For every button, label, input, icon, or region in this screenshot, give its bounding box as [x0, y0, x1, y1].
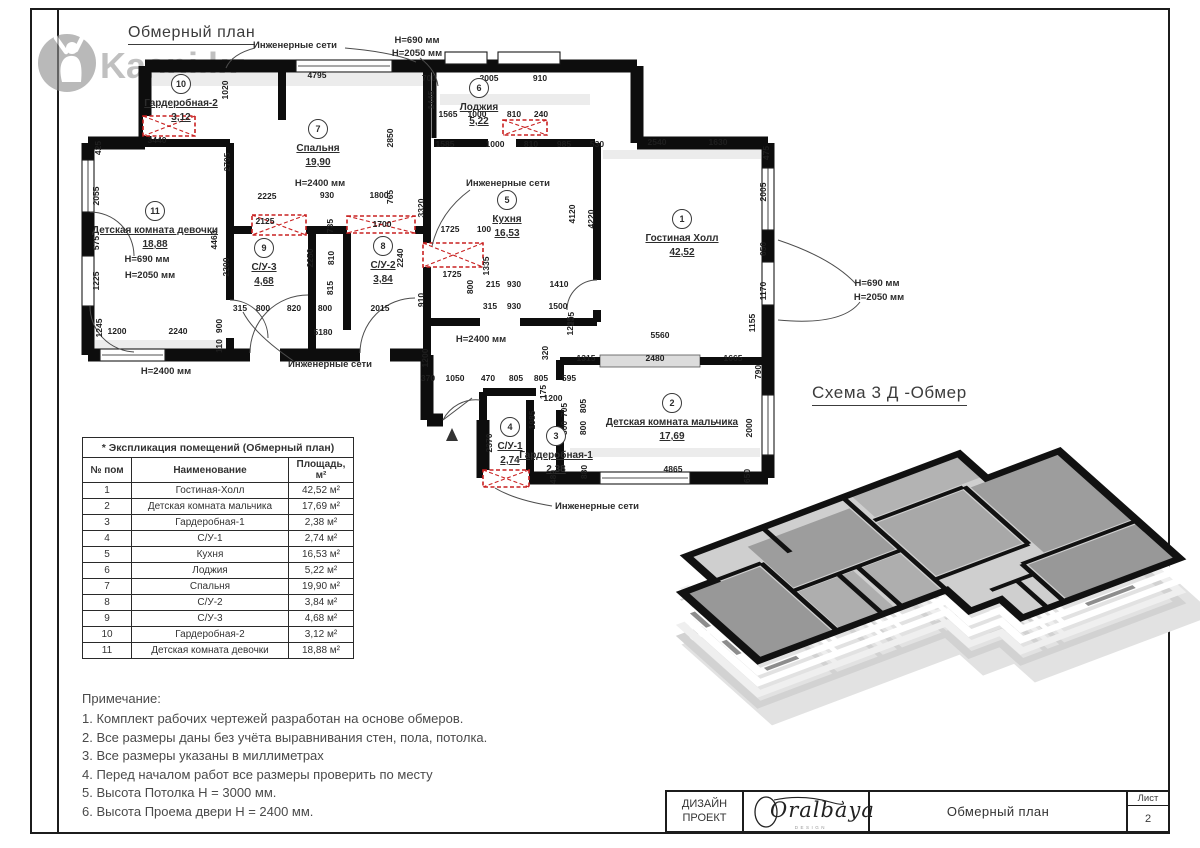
sheet-number-cell: Лист 2 [1128, 792, 1168, 831]
col-header-name: Наименование [132, 458, 289, 483]
col-header-num: № пом [83, 458, 132, 483]
dimension-label: 1700 [373, 219, 392, 229]
entry-arrow [446, 428, 458, 441]
table-row: 6Лоджия5,22 м² [83, 563, 354, 579]
doc-title-cell: Обмерный план [870, 792, 1128, 831]
annotation-label: Инженерные сети [253, 40, 337, 51]
sheet-label: Лист [1128, 792, 1168, 806]
note-item: 1. Комплект рабочих чертежей разработан … [82, 710, 522, 728]
dimension-label: 2005 [758, 182, 768, 201]
dimension-label: 810 [326, 251, 336, 265]
room-area: 19,90 [305, 157, 330, 168]
note-item: 4. Перед началом работ все размеры прове… [82, 766, 522, 784]
room-area: 2,38 [546, 464, 566, 475]
dimension-label: 320 [540, 346, 550, 360]
dimension-label: 805 [509, 373, 523, 383]
dimension-label: 2240 [395, 248, 405, 267]
dimension-label: 530 [590, 139, 604, 149]
company-line2: ПРОЕКТ [682, 812, 726, 826]
dimension-label: 175 [538, 385, 548, 399]
dimension-label: 4795 [308, 70, 327, 80]
dimension-label: 315 [483, 301, 497, 311]
dimension-label: 3440 [148, 135, 167, 145]
dimension-label: 880 [579, 465, 589, 479]
room-number: 8 [380, 241, 385, 251]
dimension-label: 820 [287, 303, 301, 313]
dimension-label: 1245 [94, 318, 104, 337]
dimension-label: 930 [320, 190, 334, 200]
company-cell: ДИЗАЙН ПРОЕКТ [667, 792, 744, 831]
sheet-number: 2 [1128, 806, 1168, 831]
room-name: С/У-2 [370, 260, 396, 271]
dimension-label: 370 [421, 373, 435, 383]
dimension-label: 810 [524, 139, 538, 149]
table-row: 7Спальня19,90 м² [83, 579, 354, 595]
annotation-label: Инженерные сети [466, 178, 550, 189]
logo-subtext: DESIGN [795, 825, 827, 830]
annotation-label: Инженерные сети [555, 501, 639, 512]
room-name: Лоджия [460, 102, 499, 113]
title-block: ДИЗАЙН ПРОЕКТ Oralbaya DESIGN Обмерный п… [665, 790, 1170, 833]
table-row: 3Гардеробная-12,38 м² [83, 515, 354, 531]
dimension-label: 900 [214, 319, 224, 333]
table-row: 1Гостиная-Холл42,52 м² [83, 483, 354, 499]
dimension-label: 1500 [549, 301, 568, 311]
notes-block: Примечание: 1. Комплект рабочих чертежей… [82, 690, 522, 821]
dimension-label: 2015 [371, 303, 390, 313]
dimension-label: 2370 [484, 433, 494, 452]
dimension-label: 2240 [169, 326, 188, 336]
note-item: 6. Высота Проема двери Н = 2400 мм. [82, 803, 522, 821]
dimension-label: 100 [477, 224, 491, 234]
room-number: 10 [176, 79, 186, 89]
dimension-label: 1000 [486, 139, 505, 149]
room-number: 6 [476, 83, 481, 93]
dimension-label: 2480 [646, 353, 665, 363]
annotation-label: Н=2400 мм [141, 366, 191, 377]
dimension-label: 1665 [724, 353, 743, 363]
room-area: 3,84 [373, 274, 393, 285]
room-area: 42,52 [669, 247, 694, 258]
dimension-label: 815 [325, 281, 335, 295]
room-name: Спальня [296, 143, 339, 154]
dimension-label: 985 [557, 139, 571, 149]
note-item: 2. Все размеры даны без учёта выравниван… [82, 729, 522, 747]
room-name: Кухня [492, 214, 521, 225]
dimension-label: 425 [93, 141, 103, 155]
dimension-label: 2540 [648, 137, 667, 147]
dimension-label: 810 [507, 109, 521, 119]
dimension-label: 910 [533, 73, 547, 83]
room-area: 17,69 [659, 431, 684, 442]
annotation-label: Н=690 мм [395, 35, 440, 46]
dimension-label: 930 [507, 279, 521, 289]
company-line1: ДИЗАЙН [682, 798, 727, 812]
dimension-label: 1315 [577, 353, 596, 363]
dimension-label: 1170 [758, 282, 768, 301]
explication-body: 1Гостиная-Холл42,52 м²2Детская комната м… [83, 483, 354, 659]
col-header-area: Площадь, м² [289, 458, 354, 483]
room-number: 9 [261, 243, 266, 253]
dimension-label: 1200 [420, 348, 430, 367]
annotation-label: Н=2050 мм [854, 292, 904, 303]
dimension-label: 805 [578, 399, 588, 413]
room-area: 16,53 [494, 228, 519, 239]
explication-table: * Экспликация помещений (Обмерный план) … [82, 437, 354, 659]
dimension-label: 805 [534, 373, 548, 383]
room-number: 2 [669, 398, 674, 408]
room-name: Детская комната мальчика [606, 417, 739, 428]
annotation-label: Н=2050 мм [125, 270, 175, 281]
table-row: 4С/У-12,74 м² [83, 531, 354, 547]
annotation-label: Н=690 мм [855, 278, 900, 289]
dimension-label: 240 [534, 109, 548, 119]
dimension-label: 650 [758, 242, 768, 256]
dimension-label: 5180 [314, 327, 333, 337]
dimension-label: 800 [318, 303, 332, 313]
annotation-label: Н=2400 мм [456, 334, 506, 345]
dimension-label: 1985 [527, 410, 537, 429]
dimension-label: 2225 [258, 191, 277, 201]
dimension-label: 1410 [550, 279, 569, 289]
dimension-label: 2850 [385, 128, 395, 147]
room-name: Детская комната девочки [92, 225, 218, 236]
dimension-label: 1020 [220, 80, 230, 99]
room-area: 18,88 [142, 239, 167, 250]
room-name: Гардеробная-2 [144, 97, 218, 109]
dimension-label: 2055 [91, 186, 101, 205]
room-area: 4,68 [254, 276, 274, 287]
drawing-sheet: { "sheet": { "plan_title": "Обмерный пла… [0, 0, 1200, 848]
dimension-label: 800 [465, 280, 475, 294]
table-title: * Экспликация помещений (Обмерный план) [83, 438, 354, 458]
dimension-label: 1725 [443, 269, 462, 279]
room-number: 4 [507, 422, 512, 432]
table-header-row: № пом Наименование Площадь, м² [83, 458, 354, 483]
room-area: 5,22 [469, 116, 489, 127]
table-row: 2Детская комната мальчика17,69 м² [83, 499, 354, 515]
dimension-label: 110 [214, 339, 224, 353]
dimension-label: 4220 [586, 209, 596, 228]
dimension-label: 1200 [108, 326, 127, 336]
room-name: С/У-3 [251, 262, 277, 273]
annotation-label: Н=2050 мм [392, 48, 442, 59]
dimension-label: 4120 [567, 204, 577, 223]
dimension-label: 800 [256, 303, 270, 313]
room-area: 3,12 [171, 112, 191, 123]
annotation-label: Инженерные сети [288, 359, 372, 370]
room-area: 2,74 [500, 455, 520, 466]
dimension-label: 2200 [221, 257, 231, 276]
room-name: Гостиная Холл [645, 233, 718, 244]
table-row: 10Гардеробная-23,12 м² [83, 627, 354, 643]
dimension-label: 5560 [651, 330, 670, 340]
annotation-label: Н=690 мм [125, 254, 170, 265]
dimension-label: 735 [325, 219, 335, 233]
dimension-label: 475 [761, 146, 771, 160]
note-item: 3. Все размеры указаны в миллиметрах [82, 747, 522, 765]
dimension-label: 1630 [709, 137, 728, 147]
dimension-label: 650 [742, 469, 752, 483]
dimension-label: 1050 [446, 373, 465, 383]
dimension-label: 910 [416, 293, 426, 307]
dimension-label: 1725 [441, 224, 460, 234]
note-item: 5. Высота Потолка Н = 3000 мм. [82, 784, 522, 802]
dimension-label: 4865 [664, 464, 683, 474]
dimension-label: 2250 [305, 248, 315, 267]
dimension-label: 2000 [744, 418, 754, 437]
room-number: 5 [504, 195, 509, 205]
logo-text: Oralbaya [770, 798, 875, 822]
dimension-label: 315 [233, 303, 247, 313]
dimension-label: 3320 [416, 198, 426, 217]
dimension-label: 575 [91, 236, 101, 250]
table-row: 11Детская комната девочки18,88 м² [83, 643, 354, 659]
dimension-label: 595 [562, 373, 576, 383]
table-row: 9С/У-34,68 м² [83, 611, 354, 627]
logo-cell: Oralbaya DESIGN [744, 792, 870, 831]
dimension-label: 2705 [222, 152, 232, 171]
dimension-label: 470 [481, 373, 495, 383]
room-number: 3 [553, 431, 558, 441]
dimension-label: 215 [486, 279, 500, 289]
annotation-label: Н=2400 мм [295, 178, 345, 189]
room-name: Гардеробная-1 [519, 449, 593, 461]
notes-list: 1. Комплект рабочих чертежей разработан … [82, 710, 522, 821]
dimension-label: 705 [559, 403, 569, 417]
table-row: 8С/У-23,84 м² [83, 595, 354, 611]
room-number: 11 [150, 206, 160, 216]
dimension-label: 930 [507, 301, 521, 311]
dimension-label: 1445 [426, 90, 436, 109]
dimension-label: 800 [578, 421, 588, 435]
dimension-label: 1235 [565, 316, 575, 335]
dimension-label: 1585 [436, 139, 455, 149]
notes-title: Примечание: [82, 690, 522, 708]
dimension-label: 1335 [481, 256, 491, 275]
dimension-label: 700 [422, 73, 436, 83]
dimension-label: 765 [385, 190, 395, 204]
room-name: С/У-1 [497, 441, 523, 452]
dimension-label: 1565 [439, 109, 458, 119]
dimension-label: 1155 [747, 314, 757, 333]
dimension-label: 1225 [91, 271, 101, 290]
table-row: 5Кухня16,53 м² [83, 547, 354, 563]
room-number: 7 [315, 124, 320, 134]
dimension-label: 2125 [256, 216, 275, 226]
room-number: 1 [679, 214, 684, 224]
dimension-label: 790 [753, 365, 763, 379]
